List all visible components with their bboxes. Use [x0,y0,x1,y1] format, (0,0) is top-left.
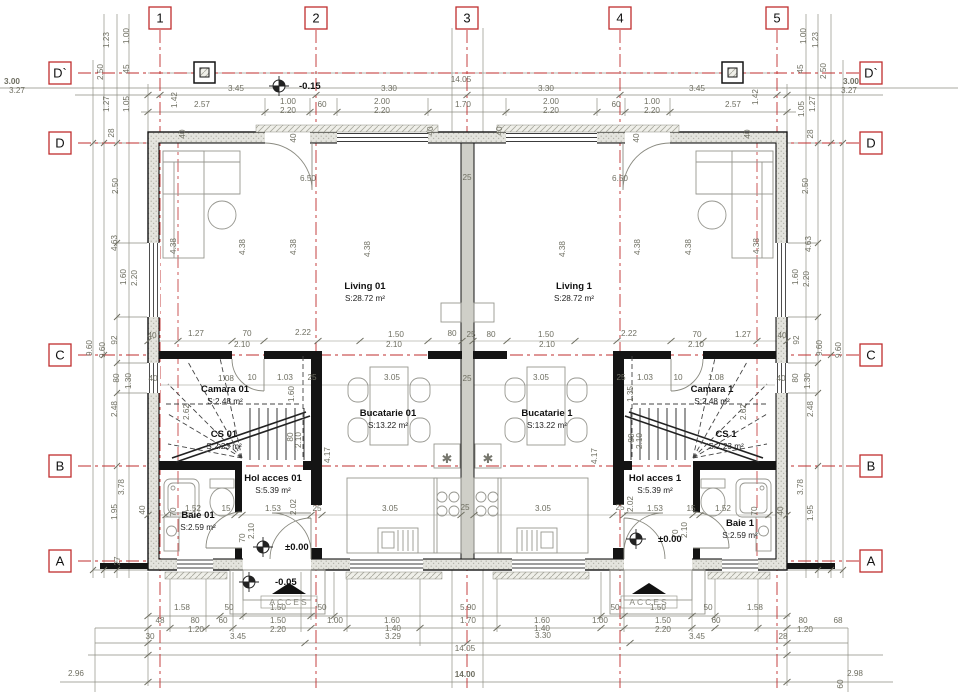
room-name: Living 01 [344,281,386,292]
dim-text: 2.20 [543,106,559,115]
dim-text: 1.05 [797,101,806,117]
tv-unit-right [474,303,494,322]
coffee-table-right [698,201,726,229]
dim-text: 1.00 [644,97,660,106]
dim-text: 4.63 [110,235,119,251]
dim-text: 1.20 [797,625,813,634]
level-marker [239,572,259,592]
dim-text: 40 [147,331,157,340]
dim-text: 28 [107,128,116,138]
dim-text: 25 [616,373,626,382]
dim-text: 25 [466,330,476,339]
dim-text: 2.02 [289,499,298,515]
dim-text: 1.30 [803,373,812,389]
floor-plan-canvas: 3.003.273.453.3014.053.303.453.003.272.5… [0,0,958,692]
dim-text: 2.96 [68,669,84,678]
dim-text: 1.60 [287,386,296,402]
dim-text: 60 [317,100,327,109]
grid-bubble-label: 1 [156,11,163,26]
grid-bubble-label: C [866,348,875,363]
dim-text: 3.78 [117,479,126,495]
room-area: S:13.22 m² [527,421,567,430]
dim-text: 25 [615,503,625,512]
dim-text: 50 [703,603,713,612]
dim-text: 25 [312,504,322,513]
dim-text: 1.27 [102,96,111,112]
dim-text: 3.45 [230,632,246,641]
dim-text: 25 [462,374,472,383]
dim-text: 3.45 [689,632,705,641]
room-area: S:5.39 m² [255,486,291,495]
dim-text: 2.20 [130,270,139,286]
dim-text: 45 [796,64,805,74]
dim-text: 6.50 [612,174,628,183]
dim-text: 2.10 [294,432,303,448]
dim-text: 1.27 [188,329,204,338]
dim-text: 60 [711,616,721,625]
dim-text: 9.60 [85,340,94,356]
dim-text: 1.60 [791,269,800,285]
dim-text: 3.05 [384,373,400,382]
grid-bubble-label: D [55,136,64,151]
dim-text: 2.48 [110,401,119,417]
dim-text: 2.48 [806,401,815,417]
dim-text: 2.20 [802,271,811,287]
dim-text: 40 [777,331,787,340]
dim-text: 1.50 [388,330,404,339]
grid-bubble-label: 2 [312,11,319,26]
dim-text: 2.00 [374,97,390,106]
dim-text: 80 [190,616,200,625]
dim-text: 2.20 [270,625,286,634]
dim-text: 1.58 [174,603,190,612]
room-name: Camara 1 [691,384,734,395]
room-area: S:2.23 m² [708,442,744,451]
grid-bubble-label: D [866,136,875,151]
dim-text: 70 [238,533,247,543]
dim-text: 1.27 [735,330,751,339]
dim-text: 14.00 [455,670,476,679]
dim-text: 40 [148,374,158,383]
access-text: ACCES [269,597,308,607]
dim-text: 15 [221,504,231,513]
dim-text: 3.45 [228,84,244,93]
dim-text: 1.23 [102,32,111,48]
room-name: Camara 01 [201,384,250,395]
tv-unit-left [441,303,461,322]
coffee-table-left [208,201,236,229]
dim-text: 3.00 [843,77,859,86]
sink-symbol: ✱ [442,451,453,466]
grid-bubble-label: 4 [616,11,623,26]
dim-text: 92 [792,335,801,345]
dim-text: 2.10 [234,340,250,349]
room-name: Living 1 [556,281,593,292]
dim-text: 1.08 [708,373,724,382]
level-text: -0.15 [299,81,321,92]
dim-text: 1.00 [122,28,131,44]
grid-bubble-label: C [55,348,64,363]
dim-text: 1.53 [265,504,281,513]
dim-text: 4.17 [590,448,599,464]
grid-bubble-label: A [56,554,65,569]
dim-text: 4.38 [752,238,761,254]
sink-symbol: ✱ [483,451,494,466]
dim-text: 3.78 [796,479,805,495]
dim-text: 3.30 [538,84,554,93]
dim-text: 40 [632,133,641,143]
dim-text: 1.58 [747,603,763,612]
dim-text: 1.23 [811,32,820,48]
dim-text: 2.22 [295,328,311,337]
dim-text: 25 [460,503,470,512]
dim-text: 2.50 [801,178,810,194]
dim-text: 9.60 [98,342,107,358]
room-name: Baie 01 [181,510,215,521]
dim-text: 1.00 [592,616,608,625]
dim-text: 4.17 [323,447,332,463]
dim-text: 1.50 [655,616,671,625]
dim-text: 25 [307,373,317,382]
dim-text: 68 [833,616,843,625]
dim-text: 70 [169,507,178,517]
dim-text: 1.42 [751,89,760,105]
dim-text: 70 [750,506,759,516]
access-triangle [632,583,666,594]
dim-text: 4.38 [684,239,693,255]
dim-text: 40 [178,129,187,139]
dim-text: 40 [138,505,147,515]
dim-text: 2.62 [739,404,748,420]
dim-text: 2.20 [644,106,660,115]
room-name: Hol acces 01 [244,473,302,484]
dim-text: 2.20 [280,106,296,115]
dim-text: 5.90 [460,603,476,612]
dim-text: 2.50 [819,63,828,79]
dim-text: 4.38 [363,241,372,257]
dim-text: 2.10 [247,523,256,539]
dim-text: 80 [791,373,800,383]
dim-text: 3.30 [381,84,397,93]
dim-text: 1.53 [647,504,663,513]
dim-text: 2.10 [635,433,644,449]
dim-text: 40 [776,506,785,516]
dim-text: 4.38 [238,239,247,255]
dim-text: 1.60 [119,269,128,285]
dim-text: 2.57 [725,100,741,109]
dim-text: 1.00 [327,616,343,625]
dim-text: 2.10 [386,340,402,349]
dim-text: 3.27 [9,86,25,95]
dim-text: 1.20 [188,625,204,634]
dim-text: 2.57 [194,100,210,109]
dim-text: 70 [692,330,702,339]
level-marker [269,76,289,96]
dim-text: 25 [462,173,472,182]
dim-text: 60 [611,100,621,109]
dim-text: 60 [218,616,228,625]
dim-text: 1.35 [626,386,635,402]
dim-text: 40 [426,126,435,136]
room-area: S:2.23 m² [206,442,242,451]
dim-text: 4.38 [558,241,567,257]
dim-text: 80 [447,329,457,338]
dim-text: 48 [155,616,165,625]
dim-text: 2.20 [655,625,671,634]
room-name: Baie 1 [726,518,755,529]
dim-text: 3.45 [689,84,705,93]
grid-bubble-label: D` [53,66,67,81]
dim-text: 28 [806,129,815,139]
dim-text: 3.05 [533,373,549,382]
dim-text: 80 [798,616,808,625]
grid-bubble-label: 5 [773,11,780,26]
dim-text: 2.98 [847,669,863,678]
dim-text: 15 [686,504,696,513]
dim-text: 60 [836,679,845,689]
room-area: S:13.22 m² [368,421,408,430]
dim-text: 1.50 [538,330,554,339]
dim-text: 1.00 [799,28,808,44]
dim-text: 2.20 [374,106,390,115]
dim-text: 2.50 [96,64,105,80]
dim-text: 3.05 [382,504,398,513]
dim-text: 1.00 [280,97,296,106]
dim-text: 3.27 [841,86,857,95]
dim-text: 3.05 [535,504,551,513]
dim-text: 1.03 [277,373,293,382]
dim-text: 2.02 [626,496,635,512]
dim-text: 80 [486,330,496,339]
room-name: Hol acces 1 [629,473,682,484]
room-area: S:5.39 m² [637,486,673,495]
dim-text: 2.62 [182,404,191,420]
level-text: ±0.00 [658,534,682,545]
dim-text: 1.70 [460,616,476,625]
dim-text: 10 [673,373,683,382]
dim-text: 92 [110,335,119,345]
access-text: ACCES [629,597,668,607]
room-area: S:28.72 m² [554,294,594,303]
room-area: S:2.48 m² [694,397,730,406]
room-area: S:2.59 m² [722,531,758,540]
room-area: S:2.48 m² [207,397,243,406]
room-name: Bucatarie 01 [360,408,417,419]
dim-text: 40 [776,374,786,383]
dim-text: 40 [743,129,752,139]
grid-bubble-label: B [56,459,65,474]
dim-text: 1.05 [122,96,131,112]
grid-bubble-label: 3 [463,11,470,26]
dim-text: 1.08 [218,374,234,383]
sofa-right [696,151,773,258]
level-text: ±0.00 [285,542,309,553]
dim-text: 1.52 [715,504,731,513]
dim-text: 3.29 [385,632,401,641]
dim-text: 40 [495,126,504,136]
dim-text: 70 [242,329,252,338]
room-name: Bucatarie 1 [521,408,573,419]
grid-bubble-label: D` [864,66,878,81]
dim-text: 9.60 [815,340,824,356]
dim-text: 1.03 [637,373,653,382]
room-area: S:28.72 m² [345,294,385,303]
dim-text: 3.30 [535,631,551,640]
dim-text: 27 [113,556,122,566]
dim-text: 1.30 [124,373,133,389]
dim-text: 1.27 [808,96,817,112]
room-name: CS 1 [715,429,737,440]
floor-plan-drawing: 3.003.273.453.3014.053.303.453.003.272.5… [0,0,958,692]
dim-text: 3.00 [4,77,20,86]
dim-text: 4.38 [633,239,642,255]
dim-text: 1.70 [455,100,471,109]
dim-text: 40 [289,133,298,143]
room-area: S:2.59 m² [180,523,216,532]
dim-text: 14.05 [455,644,476,653]
room-name: CS 01 [211,429,238,440]
dim-text: 2.50 [111,178,120,194]
dim-text: 30 [145,632,155,641]
dim-text: 1.42 [170,92,179,108]
dim-text: 9.60 [834,342,843,358]
dim-text: 2.10 [539,340,555,349]
grid-bubble-label: B [867,459,876,474]
dim-text: 28 [778,632,788,641]
dim-text: 6.50 [300,174,316,183]
dim-text: 50 [317,603,327,612]
dim-text: 1.95 [110,504,119,520]
dim-text: 4.63 [804,236,813,252]
dim-text: 50 [610,603,620,612]
dim-text: 45 [122,64,131,74]
dim-text: 10 [247,373,257,382]
dim-text: 4.38 [169,238,178,254]
dim-text: 14.05 [451,75,472,84]
dim-text: 80 [112,373,121,383]
dim-text: 50 [224,603,234,612]
dim-text: 2.10 [688,340,704,349]
grid-bubble-label: A [867,554,876,569]
dim-text: 2.00 [543,97,559,106]
dim-text: 2.22 [621,329,637,338]
dim-text: 4.38 [289,239,298,255]
dim-text: 1.50 [270,616,286,625]
dim-text: 1.95 [806,505,815,521]
